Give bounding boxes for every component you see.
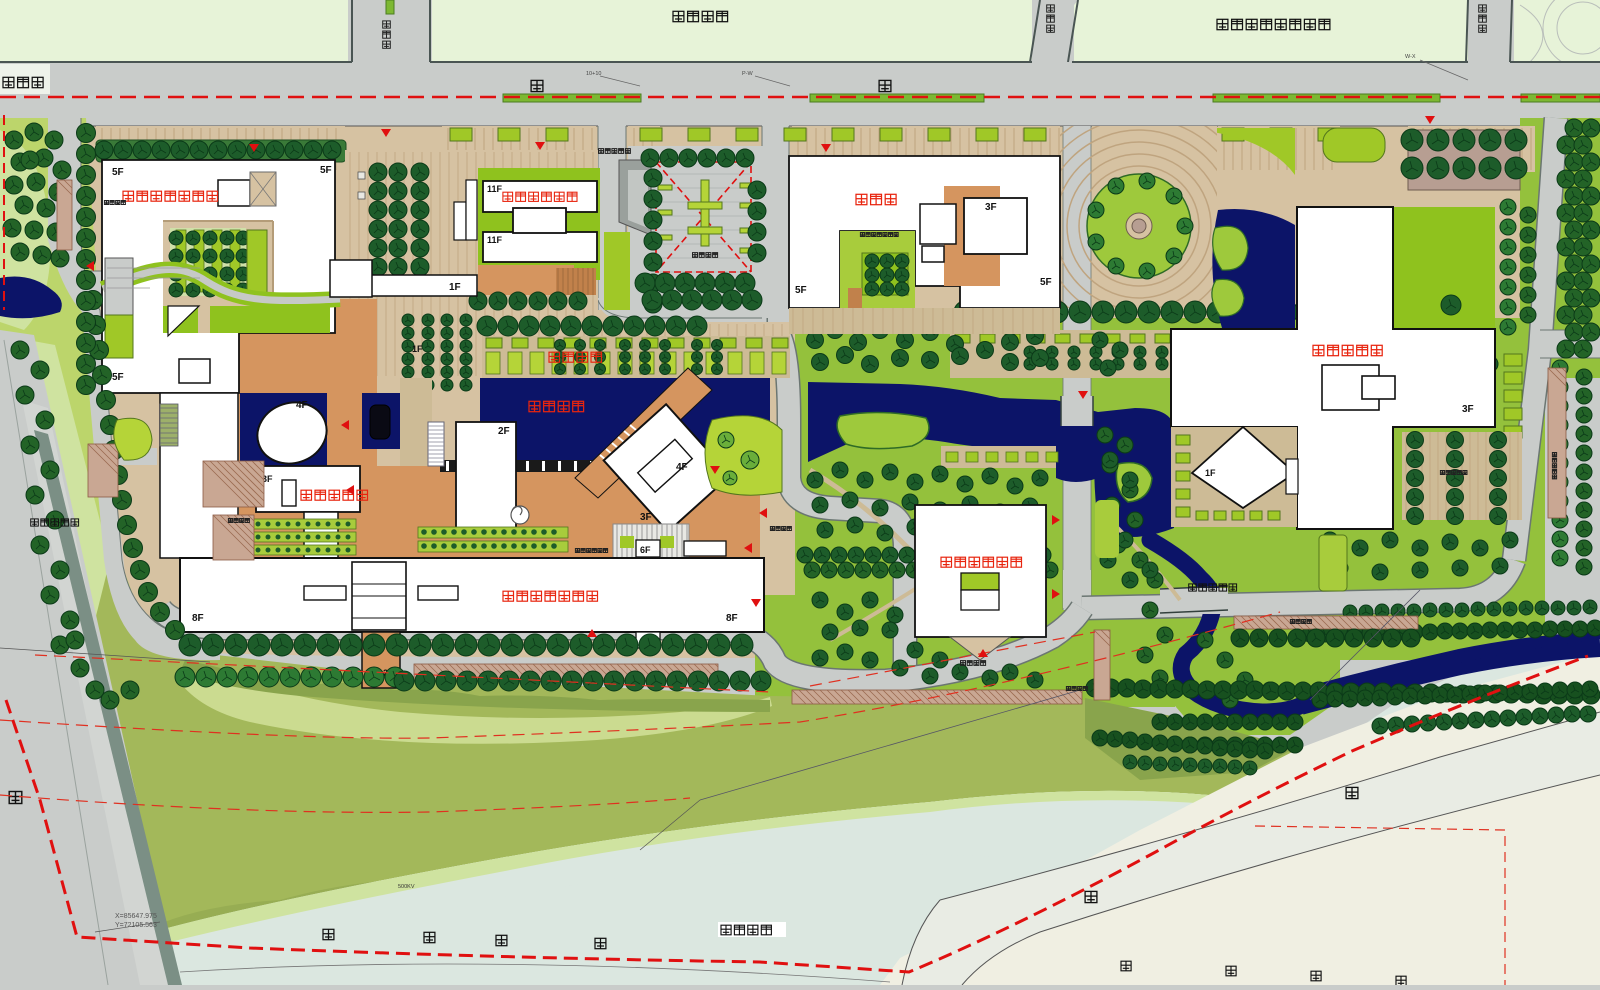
svg-text:500KV: 500KV bbox=[398, 884, 415, 890]
svg-text:10+10: 10+10 bbox=[586, 71, 601, 77]
svg-text:4F: 4F bbox=[676, 462, 688, 473]
svg-text:5F: 5F bbox=[1040, 277, 1052, 288]
svg-text:6F: 6F bbox=[640, 545, 651, 555]
svg-text:2F: 2F bbox=[498, 426, 510, 437]
svg-text:3F: 3F bbox=[1462, 404, 1474, 415]
svg-text:X=85647.975: X=85647.975 bbox=[115, 913, 157, 920]
svg-text:5F: 5F bbox=[112, 167, 124, 178]
svg-text:P-W: P-W bbox=[742, 71, 754, 77]
svg-text:1F: 1F bbox=[449, 282, 461, 293]
svg-text:1F: 1F bbox=[412, 344, 423, 354]
svg-text:3F: 3F bbox=[985, 202, 997, 213]
svg-text:5F: 5F bbox=[112, 372, 124, 383]
svg-text:3F: 3F bbox=[640, 512, 652, 523]
svg-text:5F: 5F bbox=[795, 285, 807, 296]
svg-text:W-X: W-X bbox=[1405, 54, 1416, 60]
svg-text:5F: 5F bbox=[320, 165, 332, 176]
svg-text:11F: 11F bbox=[487, 235, 503, 245]
svg-text:8F: 8F bbox=[192, 613, 204, 624]
svg-text:11F: 11F bbox=[487, 184, 503, 194]
svg-text:8F: 8F bbox=[726, 613, 738, 624]
svg-text:1F: 1F bbox=[1205, 468, 1216, 478]
svg-text:4F: 4F bbox=[296, 400, 308, 411]
